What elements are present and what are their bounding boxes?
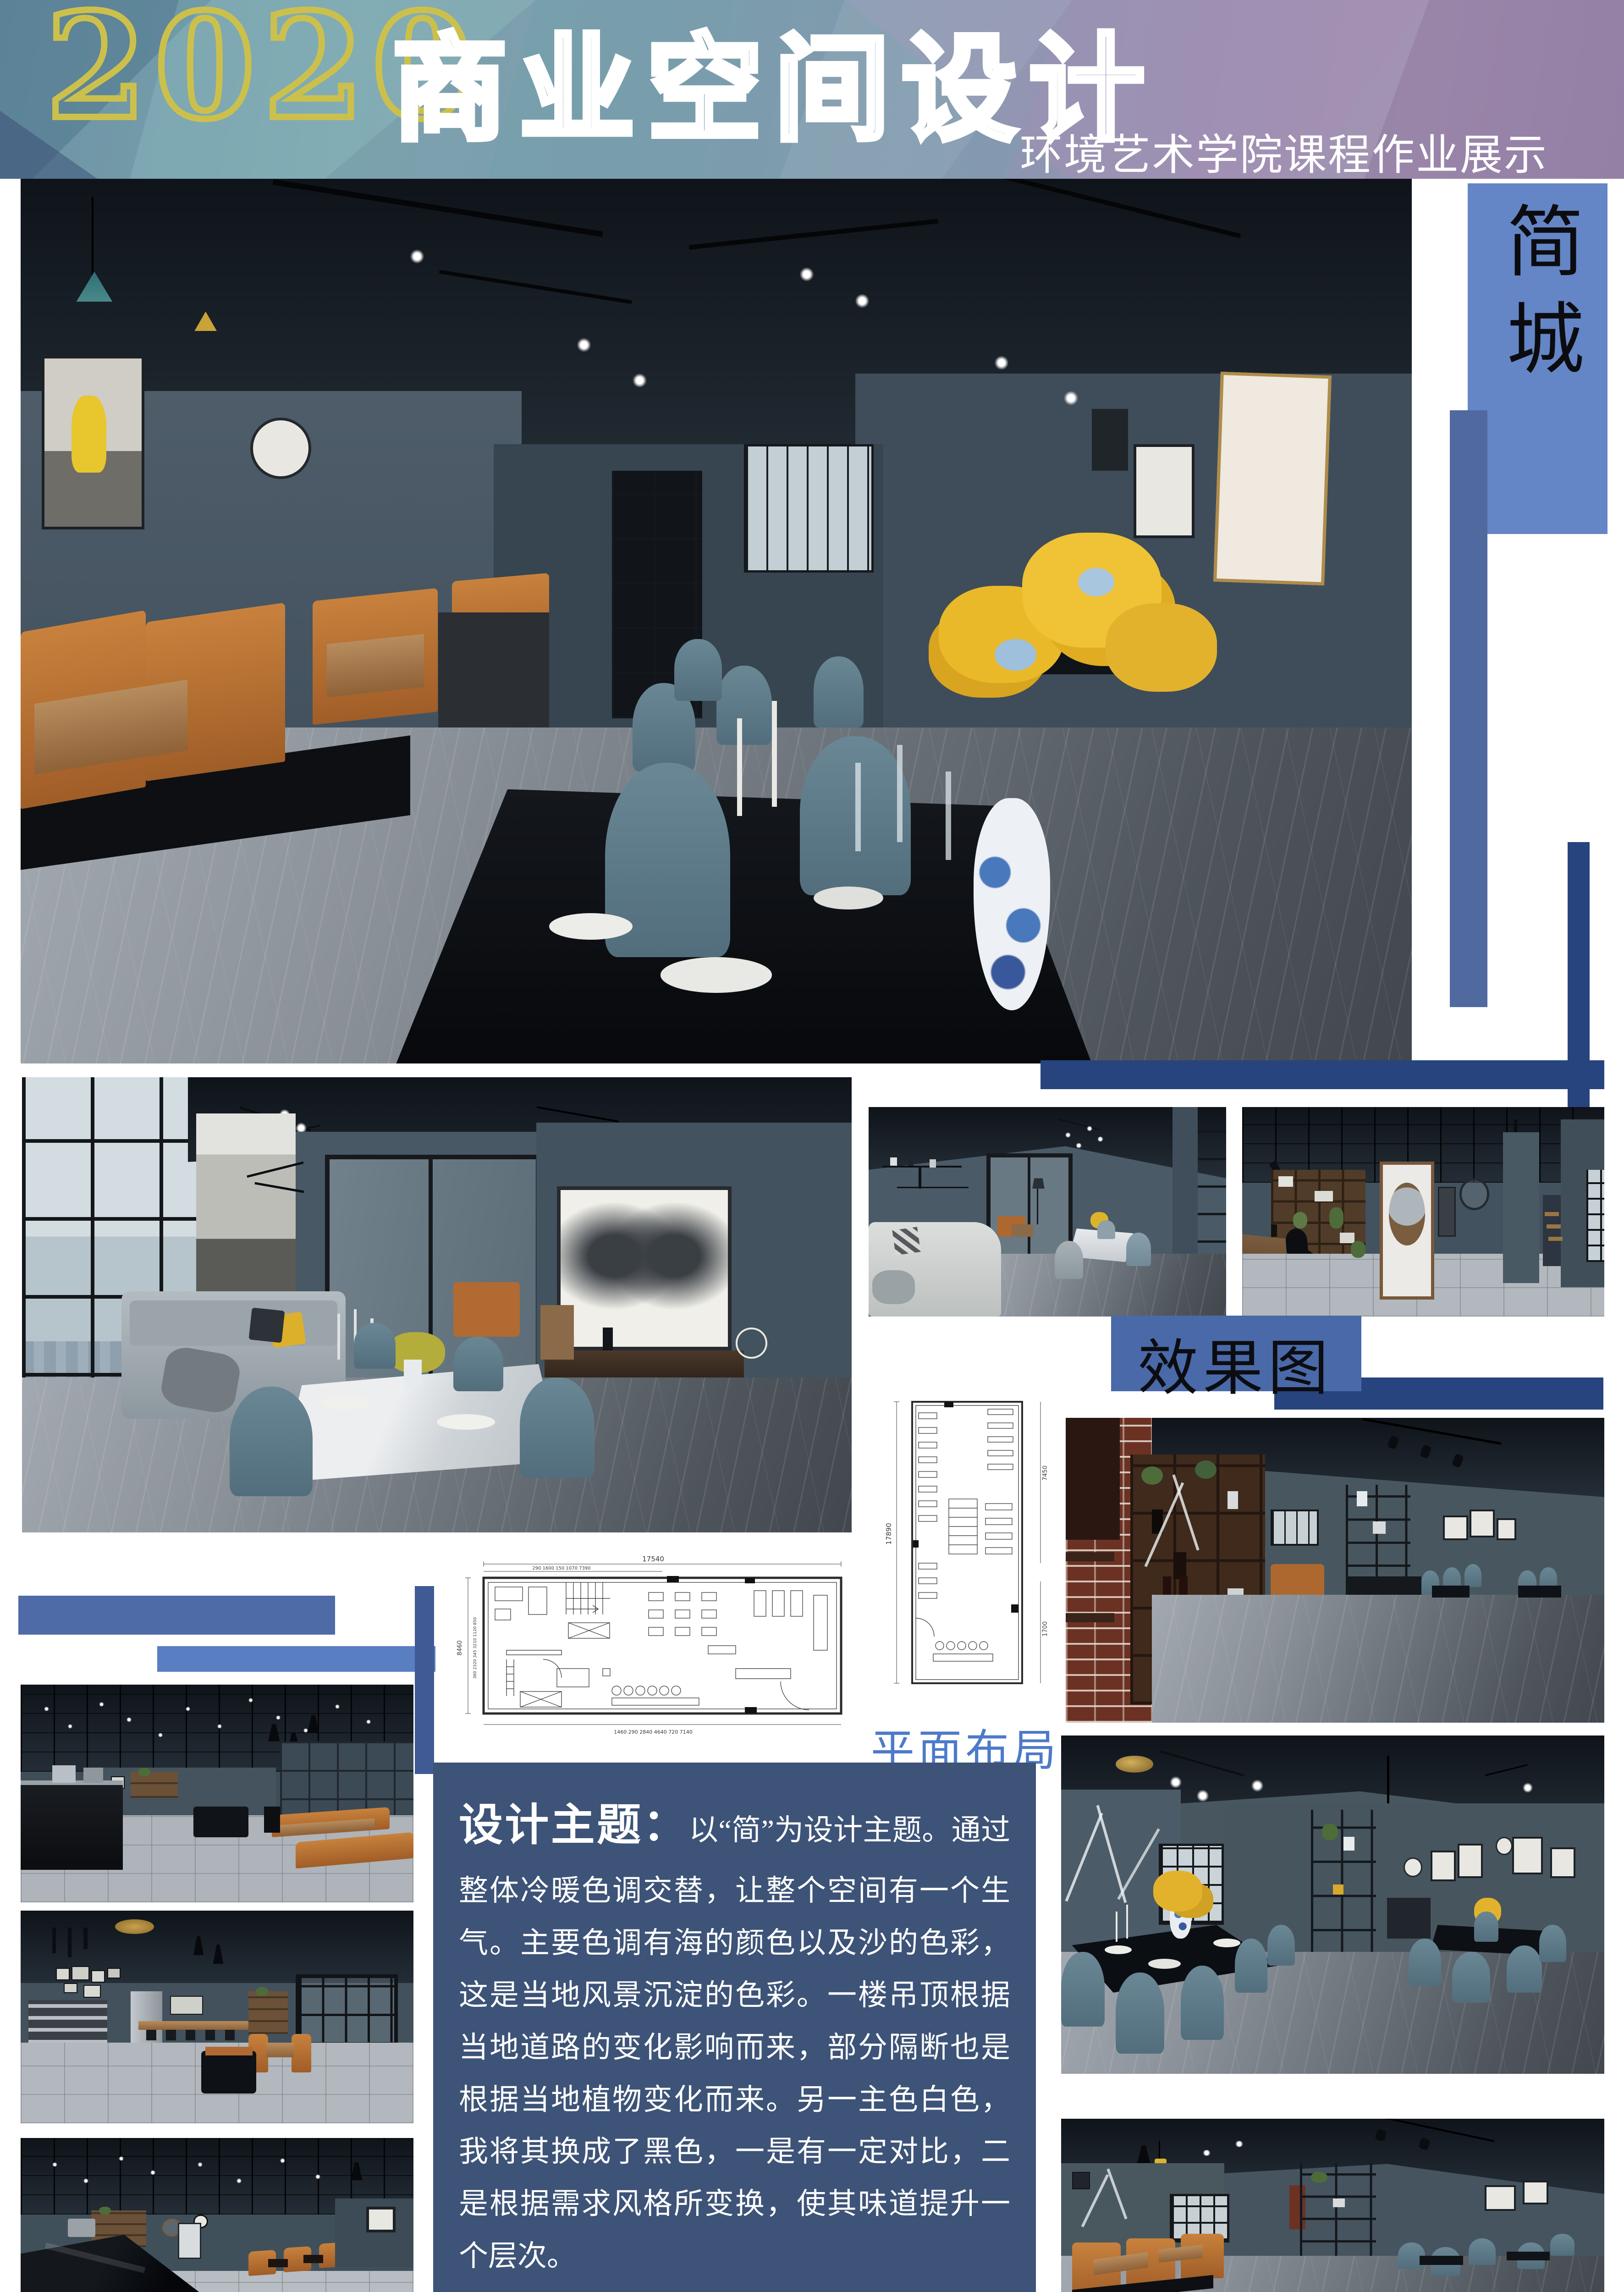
renderings-label-text: 效果图 xyxy=(1138,1319,1333,1407)
plan2-dim-right-upper: 7450 xyxy=(1042,1466,1049,1481)
header-banner: 2020 商业空间设计 环境艺术学院课程作业展示 xyxy=(0,0,1624,179)
plan1-dim-left-segments: 360 2320 345 3210 1120 850 xyxy=(473,1617,478,1679)
poster-canvas: 2020 商业空间设计 环境艺术学院课程作业展示 xyxy=(0,0,1624,2292)
floor-plan-label: 平面布局 xyxy=(871,1715,1091,1766)
accent-bar-h1 xyxy=(18,1596,335,1635)
hero-restaurant-render xyxy=(21,179,1412,1063)
brick-dining-render xyxy=(1066,1418,1604,1723)
cafe-hall-render-1 xyxy=(21,1685,413,1902)
accent-bar-v3 xyxy=(415,1586,434,1774)
plan2-dim-left: 17890 xyxy=(885,1523,893,1545)
boutique-render xyxy=(1242,1107,1604,1317)
cafe-hall-render-2 xyxy=(21,1911,413,2123)
plan1-dim-bottom-segments: 1460 290 2840 4640 720 7140 xyxy=(614,1729,692,1735)
cafe-bar-render-3 xyxy=(21,2138,413,2292)
plan1-dim-left-total: 8460 xyxy=(457,1640,463,1655)
plan2-dim-right-lower: 1700 xyxy=(1042,1621,1049,1636)
floor-plan-mezzanine: 17890 7450 1700 xyxy=(871,1389,1057,1691)
plan1-dim-top-total: 17540 xyxy=(642,1555,664,1563)
design-theme-body: 以“简”为设计主题。通过整体冷暖色调交替，让整个空间有一个生气。主要色调有海的颜… xyxy=(459,1814,1010,2272)
accent-bar-vertical-mid xyxy=(1450,410,1487,1007)
sofa-nook-render xyxy=(869,1107,1226,1317)
booth-dining-render xyxy=(1061,2119,1604,2292)
renderings-label: 效果图 xyxy=(1111,1316,1361,1391)
project-name-vertical: 简城 xyxy=(1499,201,1577,395)
page-subtitle: 环境艺术学院课程作业展示 xyxy=(1020,120,1548,179)
plan1-dim-top-segments: 290 1600 150 1070 7390 xyxy=(532,1566,590,1571)
design-theme-panel: 设计主题：以“简”为设计主题。通过整体冷暖色调交替，让整个空间有一个生气。主要色… xyxy=(433,1763,1036,2292)
floor-plan-ground: 17540 290 1600 150 1070 7390 8460 360 23… xyxy=(451,1554,853,1737)
accent-bar-horizontal-navy xyxy=(1040,1060,1604,1089)
design-theme-title: 设计主题： xyxy=(459,1801,689,1850)
lounge-dining-render xyxy=(22,1077,852,1532)
accent-bar-vertical-navy xyxy=(1568,842,1590,1146)
dining-room-render xyxy=(1061,1736,1604,2074)
accent-bar-h2 xyxy=(157,1646,435,1672)
project-name-panel: 简城 xyxy=(1468,183,1607,534)
design-theme-paragraph: 设计主题：以“简”为设计主题。通过整体冷暖色调交替，让整个空间有一个生气。主要色… xyxy=(459,1786,1010,2282)
